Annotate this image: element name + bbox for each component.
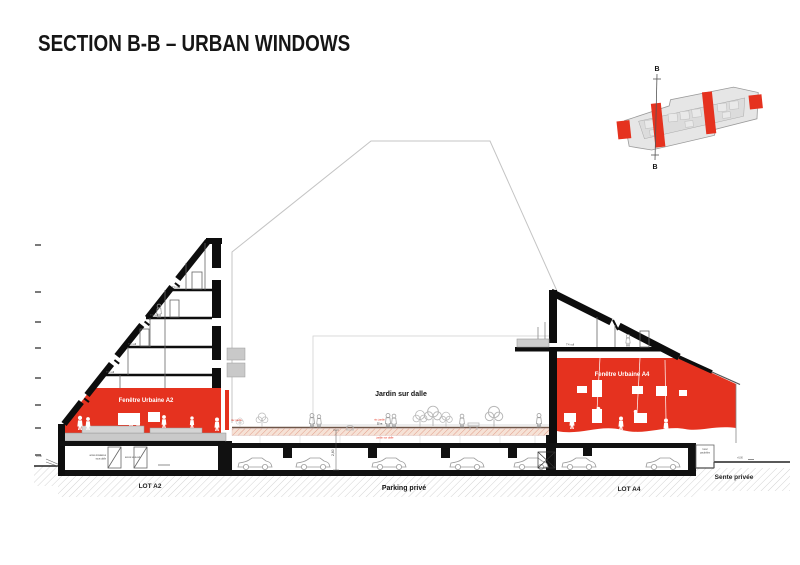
section-label-bottom: B <box>652 164 657 171</box>
urban-window-a4-label: Fenêtre Urbaine A4 <box>595 372 650 378</box>
section-drawing: B B +0,00 +0,00 <box>0 0 800 565</box>
sente-privee-label: Sente privée <box>715 474 754 481</box>
elevation-ticks <box>35 245 41 455</box>
lot-a4-label: LOT A4 <box>618 486 641 493</box>
garden-level-label: niv. jardin <box>374 418 385 422</box>
parking-height-dimension: 2,60 <box>331 430 339 470</box>
left-building: Fenêtre Urbaine A2 <box>58 238 245 490</box>
parking-ceiling-slab <box>225 443 696 448</box>
garden-slab-red-label: jardin sur dalle <box>376 435 394 439</box>
lot-a2-label: LOT A2 <box>139 483 162 490</box>
bin-room-label-1: local <box>703 449 708 451</box>
key-plan-red-end-left <box>616 120 631 139</box>
garden: Jardin sur dalle niv. jardin niv. jardin… <box>231 391 542 430</box>
garden-label: Jardin sur dalle <box>375 391 427 398</box>
floor-label-4: T4 sdl <box>106 370 115 374</box>
parked-cars <box>238 458 680 470</box>
svg-text:2,60: 2,60 <box>331 449 335 456</box>
garden-level-label-left: niv. jardin <box>231 418 242 422</box>
section-label-top: B <box>654 66 659 73</box>
right-floor-label: T4 sdl <box>566 343 575 347</box>
garden-dim-label: 32 m <box>377 424 382 426</box>
floor-label-2: T4 sdl <box>150 313 159 317</box>
floor-label-3: T4 sdl <box>128 342 137 346</box>
urban-window-a2-label: Fenêtre Urbaine A2 <box>119 398 174 404</box>
building-envelope-outline <box>232 141 557 423</box>
parking-label: Parking privé <box>382 485 426 492</box>
key-plan-red-end-right <box>749 94 763 109</box>
access-label-2: accès sous-sol <box>125 457 141 459</box>
bin-room-label-2: poubelles <box>700 453 711 455</box>
floor-label-1: T4 sdl <box>172 285 181 289</box>
sente-level-label: +0,00 <box>737 458 744 460</box>
key-plan: B B <box>614 66 766 171</box>
level-left-label: +0,00 <box>36 456 43 458</box>
access-label-line1: accès locataires <box>90 454 107 457</box>
access-label-line2: sous dalle <box>96 459 107 461</box>
